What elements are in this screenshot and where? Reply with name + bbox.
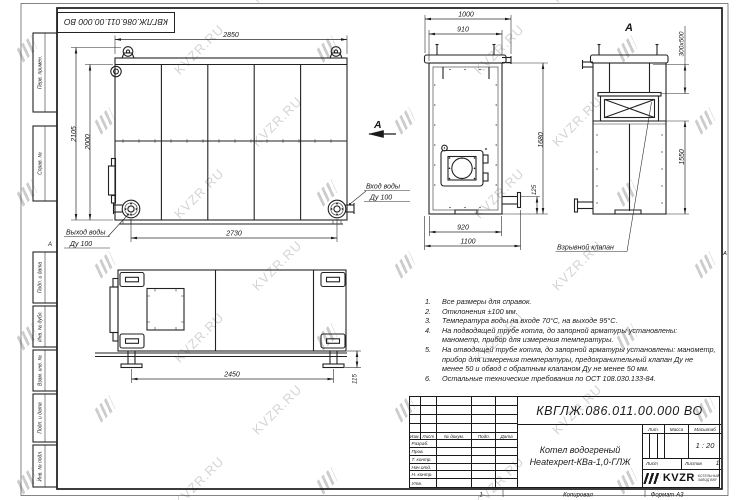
col-podp: Подп. xyxy=(472,433,496,439)
sheets-cell: Листов1 xyxy=(682,459,721,469)
frame-label-podp-data-1: Подп. и дата xyxy=(38,262,44,294)
bottom-strip-page-number: 1 xyxy=(479,493,482,499)
svg-text:2730: 2730 xyxy=(225,231,242,238)
row-nachotd: Нач.отд. xyxy=(410,464,437,471)
svg-text:125: 125 xyxy=(531,184,538,195)
kvzr-logo-icon xyxy=(643,473,662,484)
svg-text:2850: 2850 xyxy=(222,32,239,39)
note-item: 5.На отводящей трубе котла, до запорной … xyxy=(424,345,716,374)
dim-115: 115 xyxy=(345,351,361,384)
note-item: 1.Все размеры для справок. xyxy=(424,297,716,307)
row-utv: Утв. xyxy=(410,479,437,487)
outlet-flange xyxy=(114,200,140,218)
hatch-opening xyxy=(147,289,184,331)
sheets-value: 1 xyxy=(716,460,720,467)
frame-label-perv-primen: Перв. примен. xyxy=(38,56,44,89)
svg-text:910: 910 xyxy=(457,27,469,34)
dim-2450: 2450 xyxy=(132,369,334,383)
kvzr-logo-caption: КОТЕЛЬНЫЙ ЗАВОД ВВУ xyxy=(698,474,719,482)
inlet-flange xyxy=(328,200,354,218)
svg-text:Ду 100: Ду 100 xyxy=(69,241,92,248)
dim-1550: 1550 xyxy=(666,121,689,214)
top-stamp-doc-number: КВГЛЖ.086.011.00.000 ВО xyxy=(64,18,168,28)
svg-text:920: 920 xyxy=(457,225,469,232)
note-item: 6.Остальные технические требования по ОС… xyxy=(424,374,716,384)
back-pipe xyxy=(575,199,594,212)
svg-text:2450: 2450 xyxy=(223,372,240,379)
row-prov: Пров. xyxy=(410,448,437,455)
foot-pads xyxy=(120,273,345,349)
svg-text:Ду 100: Ду 100 xyxy=(369,195,392,202)
svg-text:2105: 2105 xyxy=(71,126,78,143)
svg-text:1680: 1680 xyxy=(538,132,545,148)
sheet-label: Лист xyxy=(643,459,682,469)
title-block-signature-table: Изм. Лист № докум. Подп. Дата Разраб. Пр… xyxy=(410,397,518,487)
dim-910: 910 xyxy=(429,27,502,62)
row-razrab: Разраб. xyxy=(410,440,437,447)
frame-label-podp-data-2: Подп. и дата xyxy=(38,402,44,434)
svg-text:Выход воды: Выход воды xyxy=(66,229,106,237)
view-a-label: А xyxy=(624,22,633,34)
side-flange-top xyxy=(111,66,121,76)
lifting-lug-right xyxy=(330,47,342,58)
dim-125: 125 xyxy=(521,184,541,214)
svg-text:Вход воды: Вход воды xyxy=(366,183,401,191)
scale-label: Масштаб xyxy=(689,425,721,433)
product-name-line1: Котел водогреный xyxy=(540,444,621,457)
col-izm: Изм. xyxy=(410,433,421,439)
bolt-dots xyxy=(434,69,497,208)
drawing-sheet: KVZR.RUKVZR.RUKVZR.RUKVZR.RUKVZR.RUKVZR.… xyxy=(0,0,750,500)
zone-marker-right: А xyxy=(722,251,727,257)
svg-text:1000: 1000 xyxy=(458,12,474,19)
bottom-strip-format-label: Формат А3 xyxy=(651,493,684,499)
company-logo: KVZR КОТЕЛЬНЫЙ ЗАВОД ВВУ xyxy=(643,470,721,488)
lit-cells xyxy=(643,434,664,458)
note-item: 4.На подводящей трубе котла, до запорной… xyxy=(424,326,716,345)
note-item: 2.Отклонения ±100 мм. xyxy=(424,307,716,317)
dim-1680: 1680 xyxy=(502,63,548,214)
col-list: Лист xyxy=(421,433,437,439)
dim-2730: 2730 xyxy=(131,219,337,242)
explosion-valve xyxy=(598,93,661,122)
product-name: Котел водогреный Heatexpert-КВа-1,0-ГЛЖ xyxy=(518,425,643,487)
bottom-view: 2450 115 xyxy=(95,270,361,384)
svg-text:1550: 1550 xyxy=(679,149,686,165)
note-item: 3.Температура воды на входе 70°С, на вых… xyxy=(424,316,716,326)
zone-marker-left: А xyxy=(47,242,52,248)
lit-label: Лит. xyxy=(643,425,665,433)
front-view: 2850 2105 2000 2730 xyxy=(64,32,410,248)
lifting-lug-left xyxy=(122,47,134,58)
dim-2105: 2105 xyxy=(71,48,121,221)
svg-text:115: 115 xyxy=(351,374,358,384)
title-block-doc-number: КВГЛЖ.086.011.00.000 ВО xyxy=(518,397,721,425)
dim-2000: 2000 xyxy=(85,65,113,221)
left-stub xyxy=(583,60,594,69)
top-stamp: КВГЛЖ.086.011.00.000 ВО xyxy=(57,12,175,33)
scale-value: 1 : 20 xyxy=(689,434,721,458)
notes-block: 1.Все размеры для справок. 2.Отклонения … xyxy=(424,297,716,383)
door-protrusion xyxy=(110,279,118,342)
frame-label-sprav-n: Справ. № xyxy=(38,152,44,175)
svg-text:1100: 1100 xyxy=(460,239,475,246)
svg-text:Взрывной клапан: Взрывной клапан xyxy=(557,244,614,252)
row-nkontr: Н. контр. xyxy=(410,471,437,478)
rear-pipe xyxy=(502,193,521,208)
dim-2850: 2850 xyxy=(115,32,347,54)
col-doc: № докум. xyxy=(437,433,473,439)
svg-text:2000: 2000 xyxy=(85,134,92,151)
svg-text:А: А xyxy=(373,119,382,131)
bottom-strip-copied-label: Копировал xyxy=(563,493,593,499)
back-view: А xyxy=(556,22,690,252)
frame-label-inv-dubl: Инв. № дубл. xyxy=(38,311,44,342)
frame-label-inv-podl: Инв. № подл. xyxy=(38,450,44,481)
dim-920: 920 xyxy=(430,216,502,236)
side-view: 1000 910 1680 125 xyxy=(425,12,549,251)
title-block: Изм. Лист № докум. Подп. Дата Разраб. Пр… xyxy=(409,396,720,488)
mass-label: Масса xyxy=(665,425,689,433)
product-name-line2: Heatexpert-КВа-1,0-ГЛЖ xyxy=(530,456,631,469)
inlet-callout: Вход воды Ду 100 xyxy=(349,183,410,206)
section-arrow-a: А xyxy=(369,119,396,134)
mass-value xyxy=(665,434,689,458)
dim-1100: 1100 xyxy=(425,210,521,250)
svg-text:300х500: 300х500 xyxy=(678,31,685,56)
kvzr-logo-text: KVZR xyxy=(663,472,695,484)
dim-300x500: 300х500 xyxy=(653,26,689,94)
row-tkontr: Т. контр. xyxy=(410,456,437,463)
outlet-callout: Выход воды Ду 100 xyxy=(64,214,129,249)
burner-flange xyxy=(441,145,488,186)
frame-left-columns: Перв. примен. Справ. № Подп. и дата Инв.… xyxy=(33,33,57,487)
valve-callout: Взрывной клапан xyxy=(556,102,652,252)
col-data: Дата xyxy=(496,433,517,439)
frame-label-vzam-inv: Взам. инв. № xyxy=(38,354,44,386)
